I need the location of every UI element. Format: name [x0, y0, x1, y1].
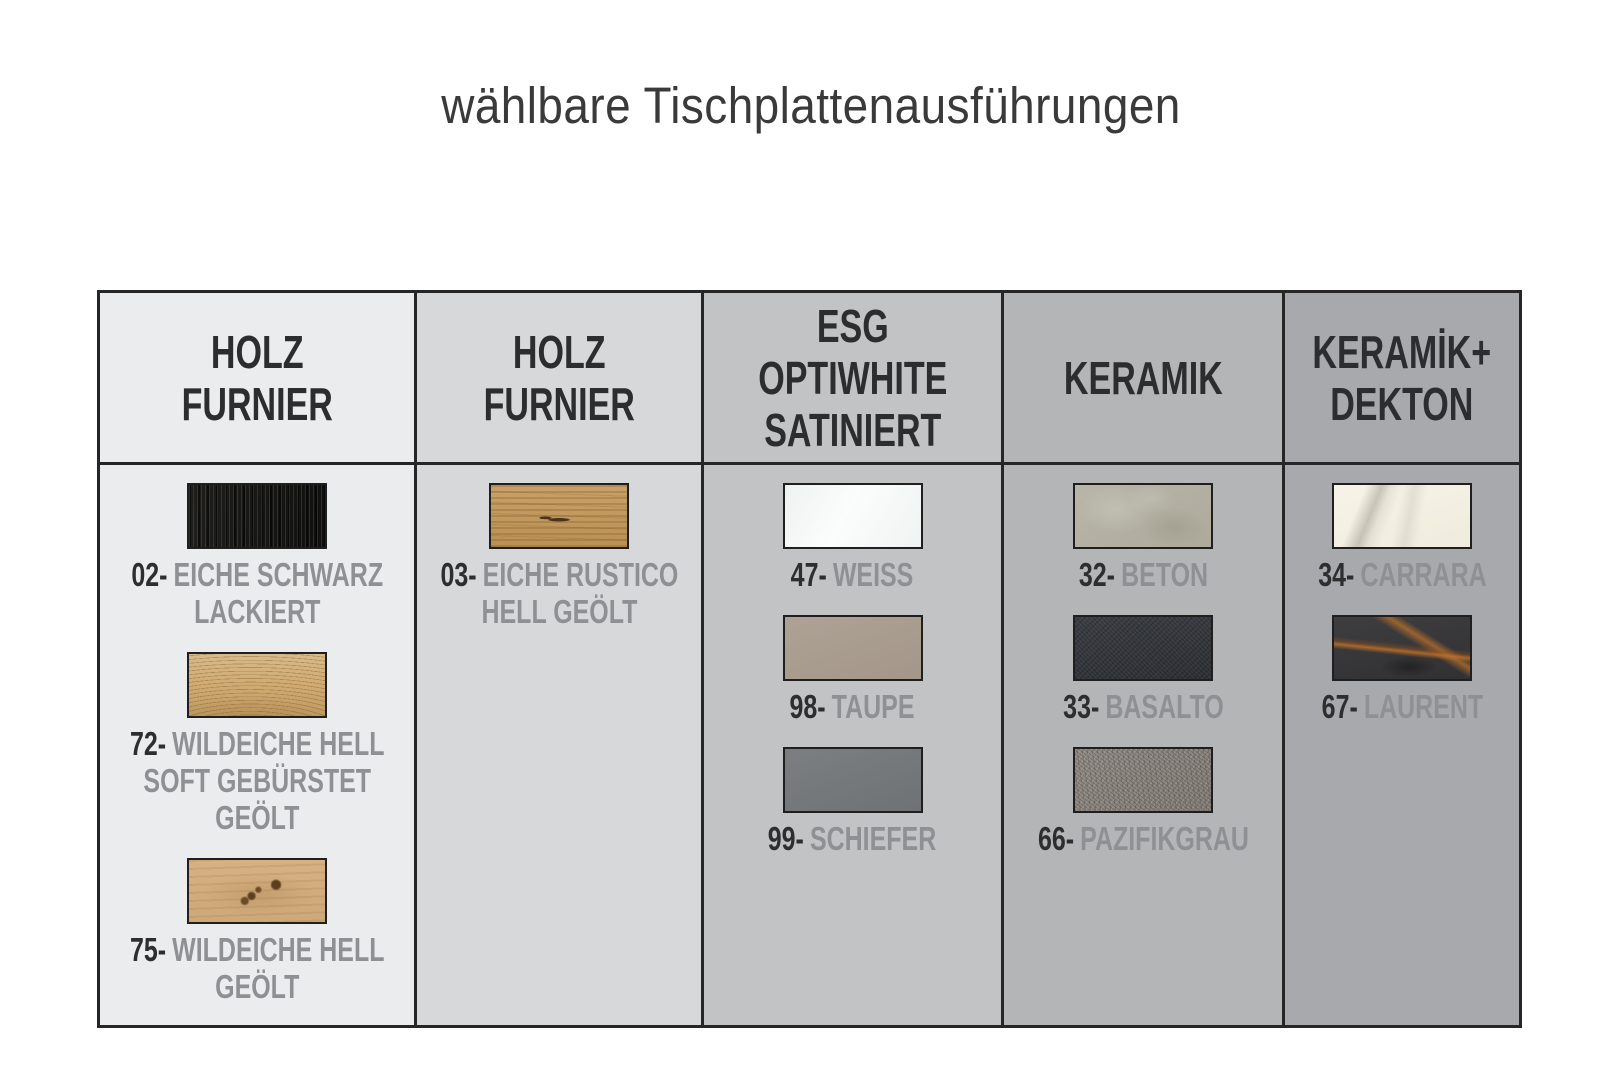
finish-code: 34- [1318, 556, 1354, 593]
finish-label: 02-EICHE SCHWARZ LACKIERT [100, 556, 414, 630]
finish-label: 72-WILDEICHE HELL SOFT GEBÜRSTET GEÖLT [100, 725, 414, 836]
finish-code: 33- [1063, 688, 1099, 725]
swatch-basalto [1073, 615, 1213, 681]
finish-label: 66-PAZIFIKGRAU [1004, 820, 1282, 857]
finish-name: BETON [1121, 556, 1208, 593]
catalog-page: wählbare Tischplattenausführungen HOLZ F… [0, 0, 1622, 1082]
column-body: 34-CARRARA 67-LAURENT [1285, 465, 1519, 1025]
finish-option-75: 75-WILDEICHE HELL GEÖLT [100, 858, 414, 1005]
finish-code: 03- [440, 556, 476, 593]
finish-option-47: 47-WEISS [704, 483, 1001, 593]
finish-label: 67-LAURENT [1285, 688, 1519, 725]
column-header-label: HOLZ FURNIER [483, 326, 634, 430]
finish-name: WILDEICHE HELL SOFT GEBÜRSTET GEÖLT [143, 725, 384, 836]
finish-name: WILDEICHE HELL GEÖLT [172, 931, 384, 1005]
column-header-esg: ESG OPTIWHITE SATINIERT [704, 293, 1001, 465]
column-header-holz-furnier-1: HOLZ FURNIER [100, 293, 414, 465]
finish-option-67: 67-LAURENT [1285, 615, 1519, 725]
finish-option-02: 02-EICHE SCHWARZ LACKIERT [100, 483, 414, 630]
swatch-eiche-schwarz-lackiert [187, 483, 327, 549]
finish-label: 99-SCHIEFER [704, 820, 1001, 857]
finish-code: 98- [790, 688, 826, 725]
finish-label: 75-WILDEICHE HELL GEÖLT [100, 931, 414, 1005]
finish-code: 47- [791, 556, 827, 593]
column-keramik: KERAMIK 32-BETON 33-BASALTO [1001, 293, 1282, 1025]
swatch-weiss [783, 483, 923, 549]
finish-label: 32-BETON [1004, 556, 1282, 593]
finish-option-72: 72-WILDEICHE HELL SOFT GEBÜRSTET GEÖLT [100, 652, 414, 836]
finish-name: WEISS [833, 556, 914, 593]
column-header-label: KERAMİK+ DEKTON [1313, 326, 1492, 430]
swatch-carrara [1332, 483, 1472, 549]
finish-name: EICHE SCHWARZ LACKIERT [173, 556, 383, 630]
column-header-keramik: KERAMIK [1004, 293, 1282, 465]
finish-option-66: 66-PAZIFIKGRAU [1004, 747, 1282, 857]
finish-name: SCHIEFER [810, 820, 936, 857]
column-header-label: ESG OPTIWHITE SATINIERT [758, 300, 947, 456]
finish-option-99: 99-SCHIEFER [704, 747, 1001, 857]
page-title: wählbare Tischplattenausführungen [81, 76, 1541, 135]
column-body: 02-EICHE SCHWARZ LACKIERT 72-WILDEICHE H… [100, 465, 414, 1025]
finish-label: 03-EICHE RUSTICO HELL GEÖLT [417, 556, 701, 630]
column-esg-optiwhite-satiniert: ESG OPTIWHITE SATINIERT 47-WEISS 98-T [701, 293, 1001, 1025]
finish-options-table: HOLZ FURNIER 02-EICHE SCHWARZ LACKIERT [97, 290, 1522, 1028]
column-body: 47-WEISS 98-TAUPE [704, 465, 1001, 1025]
column-header-holz-furnier-2: HOLZ FURNIER [417, 293, 701, 465]
finish-option-33: 33-BASALTO [1004, 615, 1282, 725]
swatch-beton [1073, 483, 1213, 549]
finish-label: 34-CARRARA [1285, 556, 1519, 593]
finish-label: 98-TAUPE [704, 688, 1001, 725]
column-body: 03-EICHE RUSTICO HELL GEÖLT [417, 465, 701, 1025]
column-holz-furnier-2: HOLZ FURNIER 03-EICHE RUSTICO HELL GEÖLT [414, 293, 701, 1025]
finish-name: EICHE RUSTICO HELL GEÖLT [481, 556, 678, 630]
column-header-label: HOLZ FURNIER [181, 326, 332, 430]
swatch-schiefer [783, 747, 923, 813]
finish-name: PAZIFIKGRAU [1080, 820, 1249, 857]
finish-name: CARRARA [1360, 556, 1486, 593]
finish-option-32: 32-BETON [1004, 483, 1282, 593]
finish-name: TAUPE [832, 688, 915, 725]
swatch-taupe [783, 615, 923, 681]
swatch-laurent [1332, 615, 1472, 681]
finish-code: 72- [130, 725, 166, 762]
finish-code: 75- [130, 931, 166, 968]
column-holz-furnier-1: HOLZ FURNIER 02-EICHE SCHWARZ LACKIERT [100, 293, 414, 1025]
column-header-label: KERAMIK [1064, 352, 1223, 404]
finish-label: 47-WEISS [704, 556, 1001, 593]
swatch-wildeiche-hell-geoelt [187, 858, 327, 924]
swatch-eiche-rustico-hell-geoelt [489, 483, 629, 549]
finish-code: 02- [131, 556, 167, 593]
finish-option-98: 98-TAUPE [704, 615, 1001, 725]
finish-code: 67- [1321, 688, 1357, 725]
finish-option-03: 03-EICHE RUSTICO HELL GEÖLT [417, 483, 701, 630]
finish-code: 99- [768, 820, 804, 857]
column-keramik-dekton: KERAMİK+ DEKTON 34-CARRARA 67-LAURENT [1282, 293, 1519, 1025]
column-header-keramik-dekton: KERAMİK+ DEKTON [1285, 293, 1519, 465]
column-body: 32-BETON 33-BASALTO [1004, 465, 1282, 1025]
finish-name: BASALTO [1105, 688, 1223, 725]
finish-label: 33-BASALTO [1004, 688, 1282, 725]
swatch-wildeiche-hell-soft-gebuerstet-geoelt [187, 652, 327, 718]
finish-code: 32- [1078, 556, 1114, 593]
finish-name: LAURENT [1363, 688, 1482, 725]
swatch-pazifikgrau [1073, 747, 1213, 813]
finish-code: 66- [1037, 820, 1073, 857]
finish-option-34: 34-CARRARA [1285, 483, 1519, 593]
